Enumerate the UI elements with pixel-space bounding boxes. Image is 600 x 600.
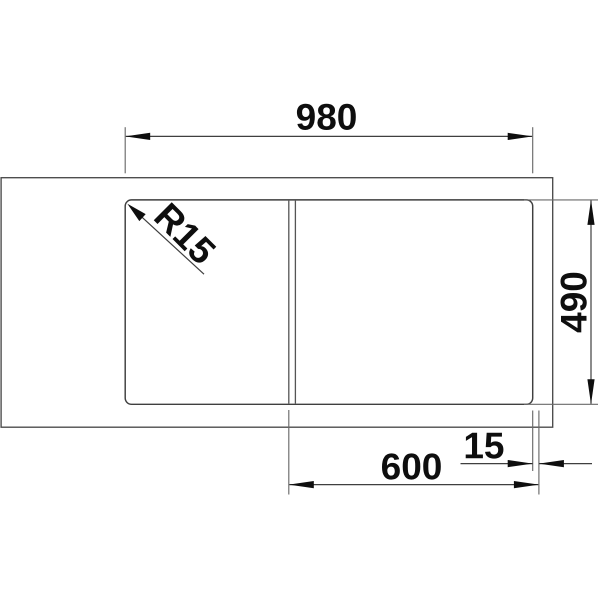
svg-text:15: 15 [463,425,504,466]
svg-text:490: 490 [553,271,594,333]
svg-text:980: 980 [296,97,358,138]
svg-text:R15: R15 [146,195,223,272]
svg-text:600: 600 [381,446,443,487]
